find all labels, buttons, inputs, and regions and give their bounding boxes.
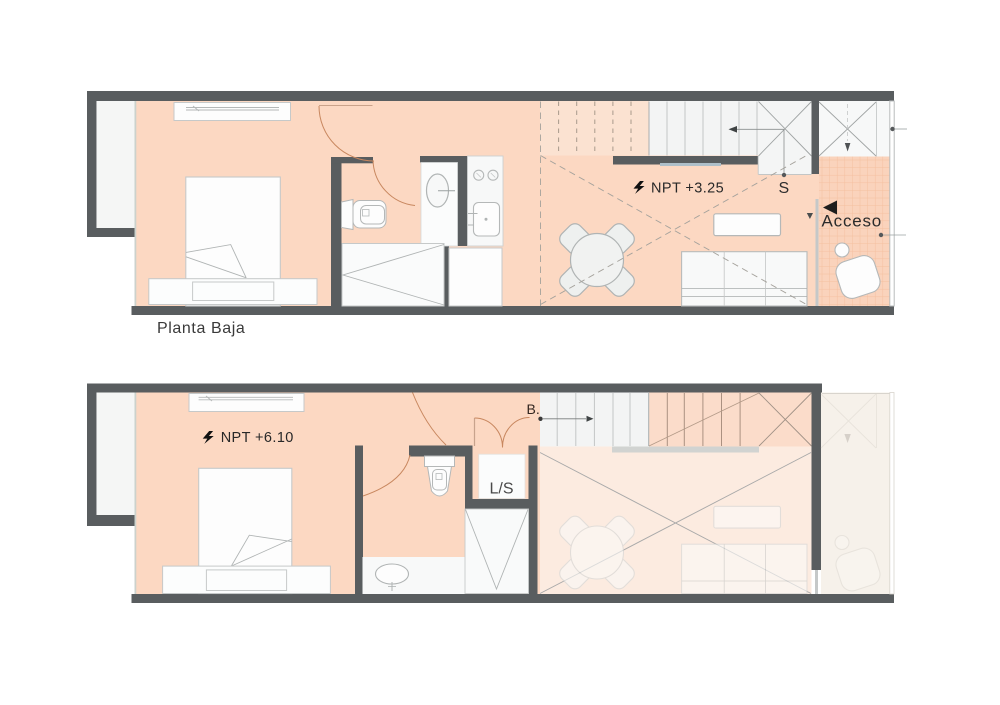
svg-text:L/S: L/S — [490, 481, 514, 498]
svg-text:NPT +6.10: NPT +6.10 — [221, 430, 294, 446]
svg-text:Acceso: Acceso — [822, 212, 883, 231]
svg-text:Planta Baja: Planta Baja — [157, 320, 245, 337]
svg-text:S: S — [779, 180, 790, 197]
svg-text:NPT +3.25: NPT +3.25 — [651, 181, 724, 197]
svg-text:B.: B. — [527, 401, 540, 417]
